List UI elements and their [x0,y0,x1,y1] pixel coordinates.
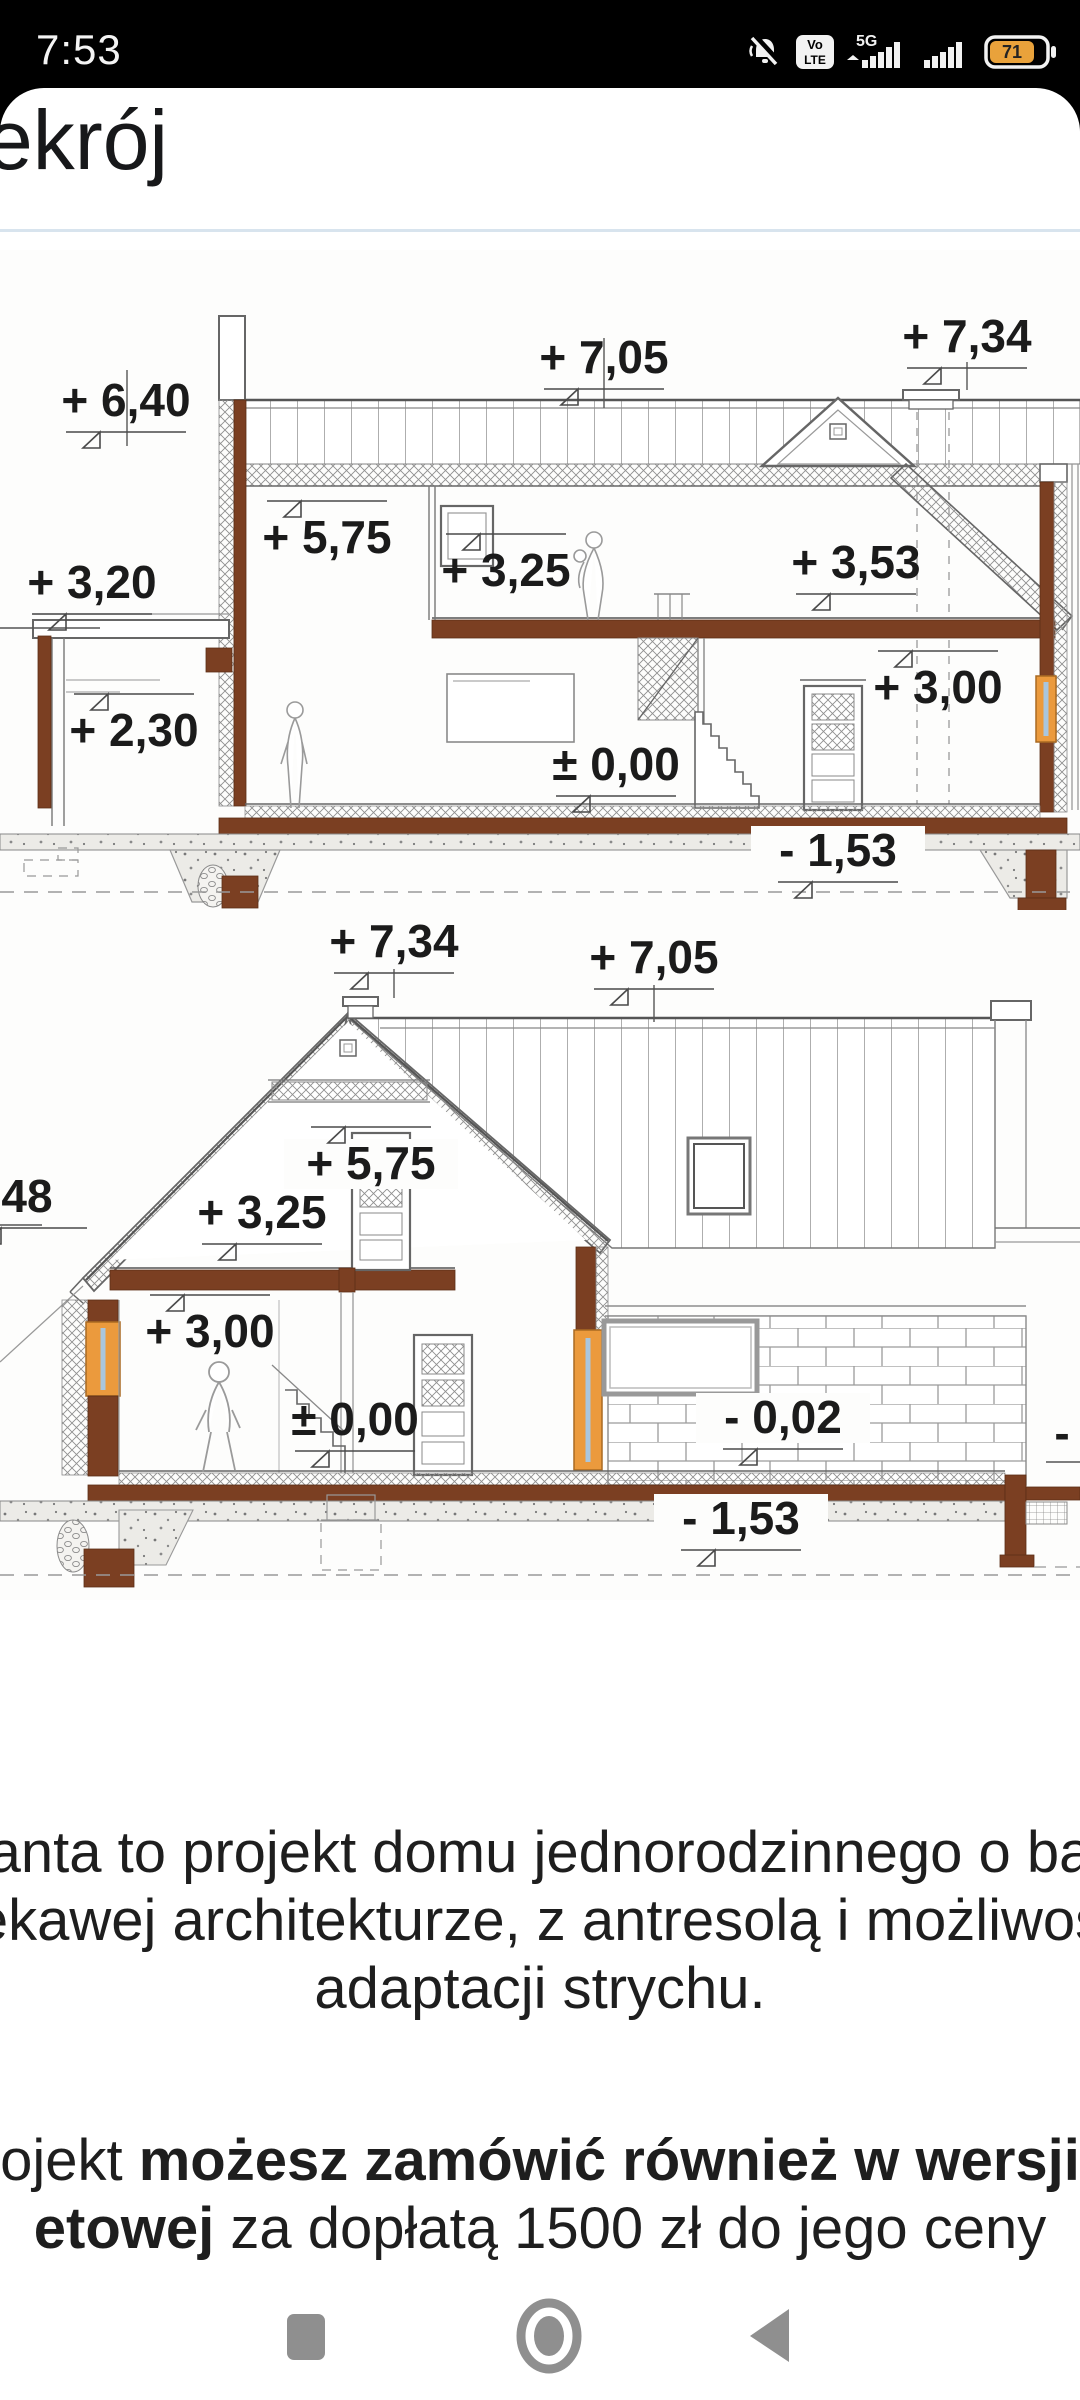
phone-screen: 7:53 Vo LTE 5G [0,0,1080,2400]
title-divider [0,229,1080,232]
dimension-label: + 7,05 [589,931,718,983]
section-drawing-1: + 6,40+ 7,05+ 7,34+ 5,75+ 3,25+ 3,53+ 3,… [0,250,1080,916]
back-button[interactable] [750,2309,789,2362]
svg-text:Vo: Vo [807,37,823,52]
garage-post [38,636,51,808]
svg-text:71: 71 [1002,42,1022,62]
notifications-muted-icon [746,32,784,72]
gable-chimney [343,997,378,1018]
section-drawing-2: + 7,34+ 7,0548+ 5,75+ 3,25+ 3,00± 0,00- … [0,910,1080,1600]
dimension-label: + 5,75 [306,1137,435,1189]
signal-5g-icon: 5G [846,32,912,72]
dimension-label: + 6,40 [61,374,190,426]
android-nav-bar [0,2270,1080,2400]
dimension-label: + 5,75 [262,511,391,563]
page-title: ekrój [0,92,168,189]
dimension-label: + 3,25 [197,1186,326,1238]
description-line-3: adaptacji strychu. [0,1956,1080,2024]
battery-icon: 71 [984,32,1058,72]
right-exterior-wall [1036,464,1078,812]
dimension-label: - [1054,1407,1069,1459]
offer-line-1: ojekt możesz zamówić również w wersji [0,2128,1080,2196]
description-line-2: ekawej architekturze, z antresolą i możl… [0,1888,1080,1956]
dimension-label: + 2,30 [69,704,198,756]
interior-door [800,680,866,810]
dimension-label: - 1,53 [779,824,897,876]
dimension-label: + 3,25 [441,544,570,596]
dimension-label: + 3,53 [791,536,920,588]
dimension-label: - 0,02 [724,1391,842,1443]
dimension-label: + 7,34 [329,915,459,967]
offer-text: za dopłatą 1500 zł do jego ceny [214,2196,1046,2264]
dimension-label: ± 0,00 [552,738,680,790]
dimension-label: + 3,00 [873,661,1002,713]
clock: 7:53 [36,26,122,74]
floor-slab [219,804,1067,834]
dimension-label: + 7,05 [539,331,668,383]
left-wall [62,1300,120,1476]
svg-text:5G: 5G [856,33,877,50]
dimension-label: 48 [1,1170,52,1222]
status-icons: Vo LTE 5G [746,30,1058,74]
ground-floor-opening [447,674,574,742]
offer-line-2: etowej za dopłatą 1500 zł do jego ceny [0,2196,1080,2264]
left-exterior-wall [219,316,246,806]
description-line-1: anta to projekt domu jednorodzinnego o b… [0,1820,1080,1888]
signal-sim2-icon [922,32,974,72]
recents-button[interactable] [287,2314,325,2360]
dimension-label: - 1,53 [682,1492,800,1544]
dimension-label: ± 0,00 [291,1393,419,1445]
status-bar: 7:53 Vo LTE 5G [0,0,1080,95]
dimension-label: + 7,34 [902,310,1032,362]
main-roof [245,400,1080,486]
volte-icon: Vo LTE [794,32,836,72]
horizontal-window [604,1321,757,1394]
svg-text:LTE: LTE [804,53,826,67]
offer-text-bold: etowej [34,2196,215,2264]
offer-text-bold: możesz zamówić również w wersji [139,2128,1080,2196]
offer-text: ojekt [0,2128,139,2196]
home-button[interactable] [521,2303,577,2369]
roof-window [688,1138,750,1214]
dimension-label: + 3,20 [27,556,156,608]
dimension-label: + 3,00 [145,1305,274,1357]
